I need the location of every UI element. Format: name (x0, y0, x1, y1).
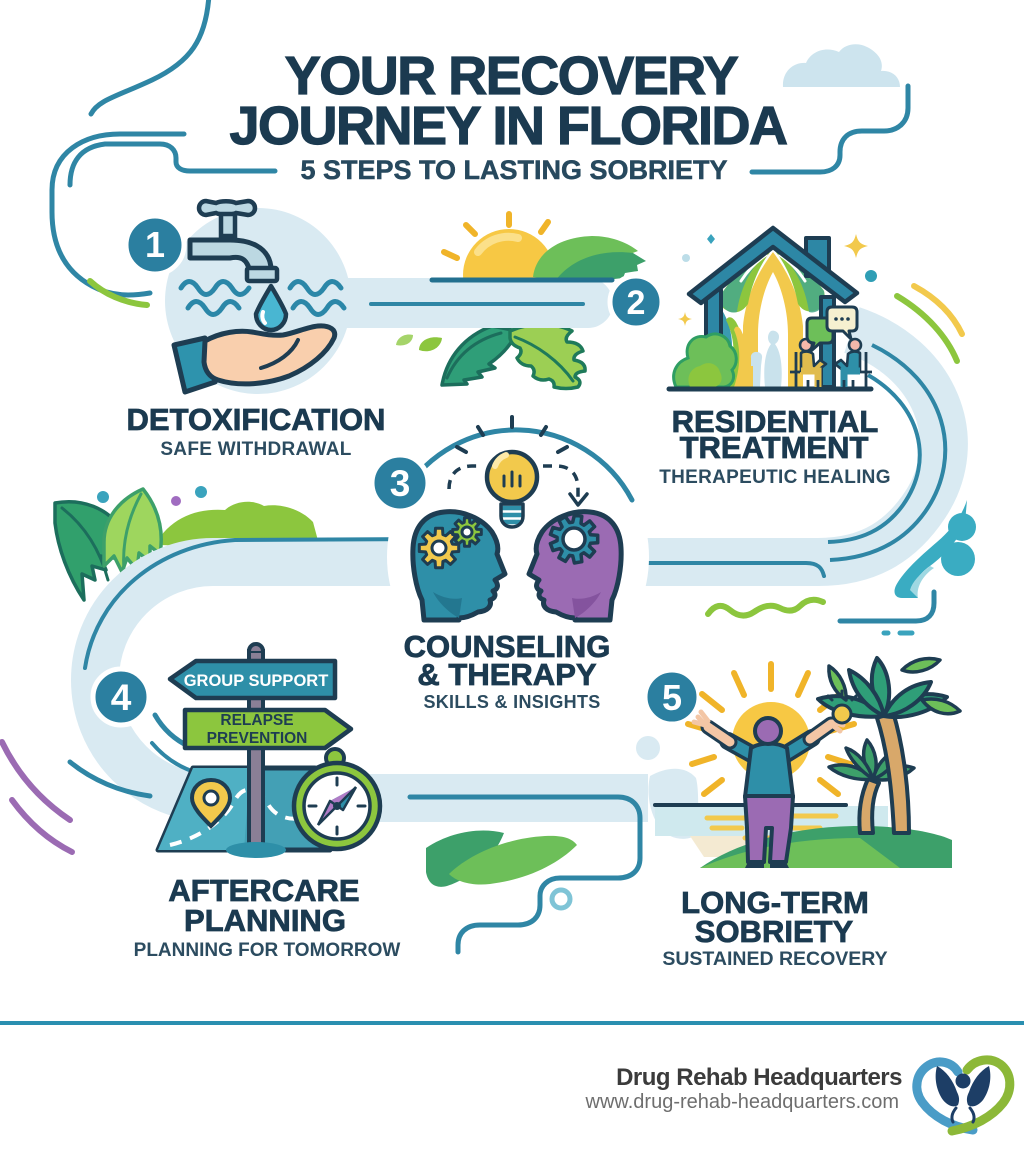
svg-text:GROUP SUPPORT: GROUP SUPPORT (184, 672, 329, 690)
svg-text:SUSTAINED RECOVERY: SUSTAINED RECOVERY (662, 948, 887, 970)
svg-text:PLANNING FOR TOMORROW: PLANNING FOR TOMORROW (134, 940, 401, 961)
svg-text:JOURNEY IN FLORIDA: JOURNEY IN FLORIDA (229, 96, 787, 156)
svg-text:3: 3 (390, 463, 411, 504)
svg-text:5: 5 (662, 677, 682, 718)
svg-text:DETOXIFICATION: DETOXIFICATION (127, 402, 386, 437)
svg-text:PLANNING: PLANNING (184, 903, 346, 938)
svg-text:THERAPEUTIC HEALING: THERAPEUTIC HEALING (659, 467, 891, 488)
svg-text:PREVENTION: PREVENTION (207, 730, 308, 747)
svg-text:RELAPSE: RELAPSE (220, 712, 293, 729)
svg-text:SKILLS & INSIGHTS: SKILLS & INSIGHTS (423, 692, 600, 712)
svg-text:SOBRIETY: SOBRIETY (695, 914, 854, 949)
svg-text:1: 1 (145, 224, 165, 265)
svg-text:SAFE WITHDRAWAL: SAFE WITHDRAWAL (160, 439, 351, 460)
svg-text:& THERAPY: & THERAPY (417, 657, 596, 692)
svg-text:Drug Rehab Headquarters: Drug Rehab Headquarters (616, 1064, 902, 1091)
svg-text:2: 2 (627, 284, 646, 322)
svg-text:4: 4 (111, 677, 132, 718)
svg-text:www.drug-rehab-headquarters.co: www.drug-rehab-headquarters.com (585, 1091, 900, 1113)
svg-text:TREATMENT: TREATMENT (680, 430, 869, 465)
svg-text:5 STEPS TO LASTING SOBRIETY: 5 STEPS TO LASTING SOBRIETY (300, 155, 727, 185)
